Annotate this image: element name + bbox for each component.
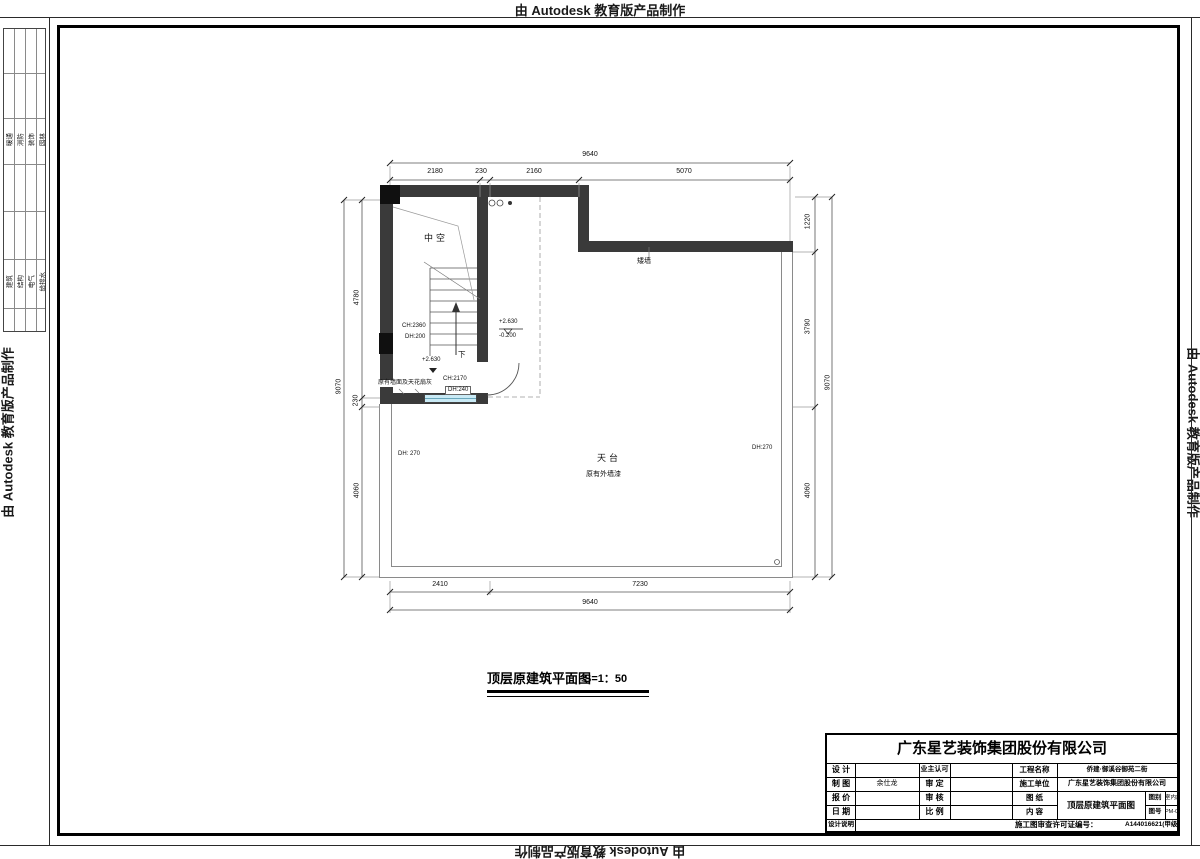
label-terrace-note: 原有外墙漆 [586, 471, 621, 479]
approve-label: 审 定 [919, 777, 950, 791]
label-ch1: CH:2360 [402, 323, 426, 330]
note-label: 设计说明 [827, 819, 855, 831]
dim-left-seg3: 4060 [354, 474, 361, 508]
level-triangle-icon [429, 368, 437, 373]
dim-left-total: 9070 [336, 370, 343, 404]
builder-value: 广东星艺装饰集团股份有限公司 [1057, 777, 1177, 791]
plan-title-underline-thick [487, 690, 649, 693]
label-down: 下 [458, 351, 466, 359]
dim-left-seg2: 230 [353, 389, 360, 413]
label-low-wall: 矮墙 [637, 258, 651, 266]
permit-label: 施工图审查许可证编号： [1015, 819, 1130, 831]
ratio-label: 比 例 [919, 805, 950, 819]
stair-arrowhead-icon [452, 302, 460, 312]
dim-right-total: 9070 [825, 366, 832, 400]
dim-right-seg2: 3790 [805, 310, 812, 344]
label-void: 中空 [424, 231, 448, 244]
label-dh2: DH:240 [445, 386, 471, 395]
check-label: 审 核 [919, 791, 950, 805]
label-level-bottom: -0.200 [499, 333, 516, 340]
dim-left-seg1: 4780 [354, 281, 361, 315]
door-swing-arc [487, 363, 519, 395]
void-roof-lines [393, 207, 474, 300]
label-dh1: DH:200 [405, 334, 425, 341]
project-label: 工程名称 [1012, 763, 1057, 777]
label-level-mid: +2.630 [422, 357, 441, 364]
dim-top-seg2: 230 [470, 168, 492, 175]
number-label: 图号 [1145, 805, 1165, 819]
content-label: 内 容 [1012, 805, 1057, 819]
category-label: 图别 [1145, 791, 1165, 805]
label-ch2: CH:2170 [443, 376, 467, 383]
project-value: 侨建·御溪谷御苑二街 [1057, 763, 1177, 777]
plan-scale: S=1：50 [584, 670, 627, 686]
sheet-label: 图 纸 [1012, 791, 1057, 805]
plan-linework [0, 0, 1200, 859]
draft-label: 制 图 [827, 777, 855, 791]
date-label: 日 期 [827, 805, 855, 819]
dim-top-seg4: 5070 [669, 168, 699, 175]
quote-label: 报 价 [827, 791, 855, 805]
stair-break-line [424, 262, 480, 299]
label-dh-right: DH:270 [752, 445, 772, 452]
category-value: 室内施 [1165, 791, 1177, 805]
label-level-top: +2.630 [499, 319, 518, 326]
label-wall-note: 原有墙面及天花扇灰 [377, 380, 433, 387]
leader-lines [399, 247, 649, 394]
draft-value: 余仕龙 [855, 777, 919, 791]
label-dh-left: DH: 270 [398, 451, 420, 458]
permit-value: A144016621(甲级) [1125, 819, 1179, 831]
title-block: 广东星艺装饰集团股份有限公司 设 计 制 图 报 价 日 期 余仕龙 业主认可 … [825, 733, 1179, 833]
drawing-sheet: 由 Autodesk 教育版产品制作 由 Autodesk 教育版产品制作 由 … [0, 0, 1200, 859]
dim-right-seg1: 1220 [805, 205, 812, 239]
pipe-circle-icon [497, 200, 503, 206]
floor-edge-dashed [488, 197, 540, 397]
company-name: 广东星艺装饰集团股份有限公司 [827, 735, 1177, 763]
dim-top-seg1: 2180 [420, 168, 450, 175]
owner-approve-label: 业主认可 [919, 763, 950, 777]
drain-dot-icon [775, 560, 780, 565]
plan-title-underline-thin [487, 696, 649, 697]
number-value: PM-01 [1165, 805, 1177, 819]
design-label: 设 计 [827, 763, 855, 777]
pipe-circle-icon [489, 200, 495, 206]
dim-right-seg3: 4060 [805, 474, 812, 508]
builder-label: 施工单位 [1012, 777, 1057, 791]
dim-bottom-seg2: 7230 [625, 581, 655, 588]
sheet-value: 顶层原建筑平面图 [1057, 791, 1145, 819]
dim-top-seg3: 2160 [519, 168, 549, 175]
dim-bottom-seg1: 2410 [425, 581, 455, 588]
plan-title: 顶层原建筑平面图 [487, 668, 591, 687]
pipe-dot-icon [508, 201, 512, 205]
label-terrace: 天台 [597, 451, 621, 464]
dim-bottom-total: 9640 [560, 599, 620, 606]
extension-lines [344, 166, 832, 613]
dim-top-total: 9640 [560, 151, 620, 158]
